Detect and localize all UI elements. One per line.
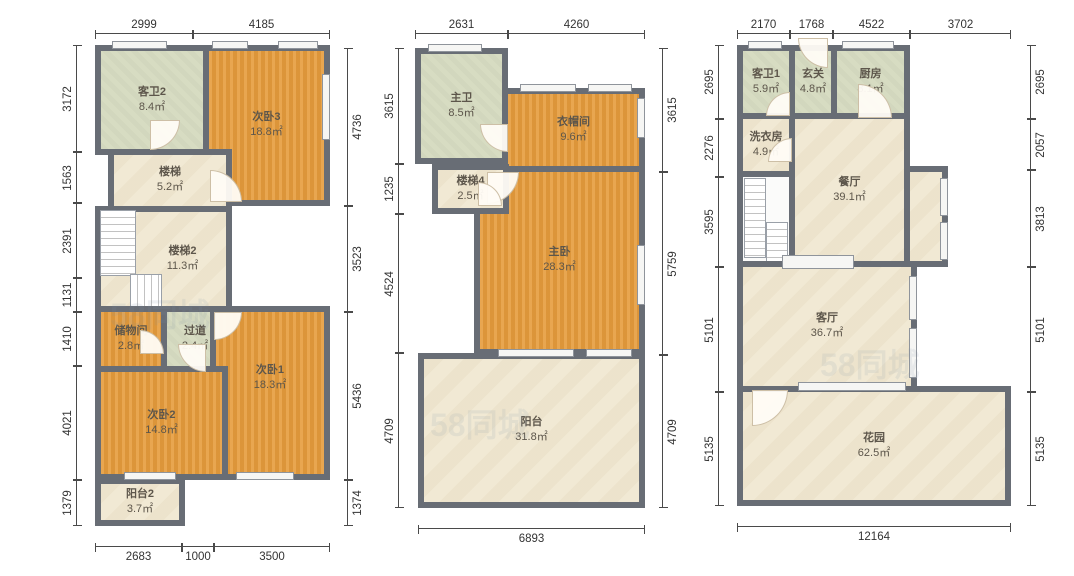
dimension: 4185 — [193, 33, 330, 34]
room-balcony-2: 阳台23.7㎡ — [95, 478, 185, 526]
window — [637, 98, 645, 138]
dimension: 4709 — [398, 353, 399, 508]
stair-flight — [100, 210, 136, 276]
window — [637, 245, 645, 305]
dimension: 4709 — [662, 355, 663, 508]
window — [212, 41, 248, 49]
dimension: 4260 — [508, 33, 645, 34]
dimension: 12164 — [737, 526, 1011, 527]
dimension: 4736 — [347, 48, 348, 206]
dimension: 1410 — [76, 312, 77, 366]
window — [588, 84, 632, 92]
window — [940, 222, 948, 260]
dimension: 2631 — [415, 33, 508, 34]
dimension: 3615 — [398, 48, 399, 164]
stair-flight — [130, 274, 162, 308]
dimension: 3595 — [718, 177, 719, 267]
window — [124, 472, 176, 480]
dimension: 1131 — [76, 278, 77, 312]
dimension: 2170 — [737, 33, 790, 34]
window — [940, 178, 948, 216]
dimension: 1563 — [76, 152, 77, 203]
dimension: 2695 — [1030, 45, 1031, 119]
dimension: 3813 — [1030, 170, 1031, 267]
window — [798, 382, 906, 391]
dimension: 1768 — [790, 33, 833, 34]
room-living: 客厅36.7㎡ — [737, 261, 917, 392]
room-balcony: 阳台31.8㎡ — [418, 353, 645, 508]
floorplan-canvas: 客卫28.4㎡ 次卧318.8㎡ 楼梯5.2㎡ 楼梯211.3㎡ 储物间2.8㎡… — [0, 0, 1074, 576]
window — [842, 41, 894, 49]
dimension: 5759 — [662, 172, 663, 355]
dimension: 3523 — [347, 206, 348, 312]
dimension: 2057 — [1030, 119, 1031, 170]
room-bedroom-2: 次卧214.8㎡ — [95, 366, 228, 480]
dimension: 1235 — [398, 164, 399, 214]
window — [909, 276, 917, 320]
window — [428, 44, 482, 52]
dimension: 4021 — [76, 366, 77, 480]
window — [498, 349, 574, 357]
dimension: 6893 — [418, 528, 645, 529]
room-cloakroom: 衣帽间9.6㎡ — [502, 88, 645, 172]
dimension: 1379 — [76, 480, 77, 526]
window — [112, 41, 167, 49]
window — [278, 41, 318, 49]
window — [909, 328, 917, 378]
dimension: 4524 — [398, 214, 399, 353]
dimension: 2276 — [718, 119, 719, 177]
dimension: 2695 — [718, 45, 719, 119]
window — [748, 41, 782, 49]
window — [520, 84, 576, 92]
dimension: 1374 — [347, 480, 348, 526]
dimension: 4522 — [833, 33, 910, 34]
dimension: 3500 — [214, 546, 330, 547]
window — [586, 349, 632, 357]
dimension: 1000 — [182, 546, 214, 547]
dimension: 2683 — [95, 546, 182, 547]
dimension: 5436 — [347, 312, 348, 480]
dimension: 5135 — [718, 392, 719, 506]
dimension: 5135 — [1030, 392, 1031, 506]
window — [782, 255, 854, 269]
dimension: 2999 — [95, 33, 193, 34]
dimension: 5101 — [718, 267, 719, 392]
dimension: 5101 — [1030, 267, 1031, 392]
window — [322, 74, 330, 140]
dimension: 3615 — [662, 48, 663, 172]
window — [236, 472, 294, 480]
room-dining: 餐厅39.1㎡ — [789, 113, 910, 267]
stair-flight — [744, 178, 766, 258]
dimension: 3172 — [76, 45, 77, 152]
dimension: 3702 — [910, 33, 1011, 34]
dimension: 2391 — [76, 203, 77, 278]
